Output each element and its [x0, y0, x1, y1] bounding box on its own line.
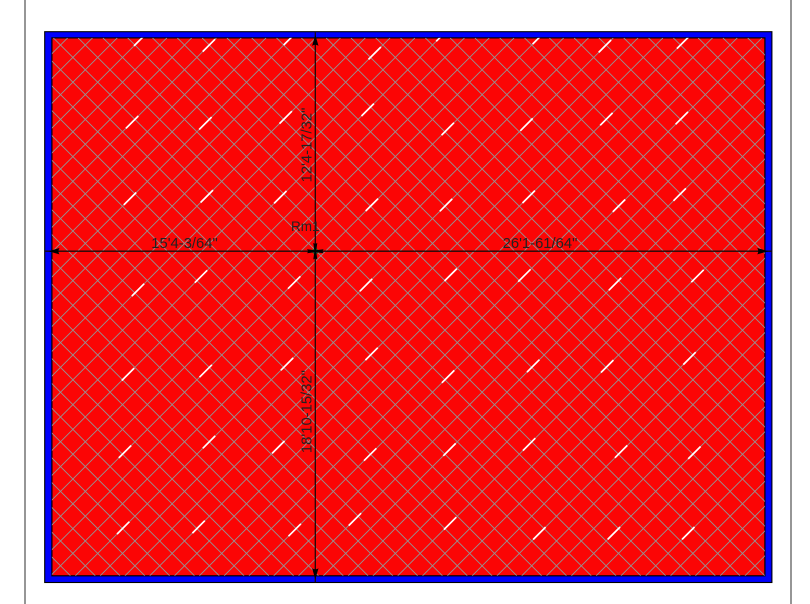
svg-text:12'4-17/32": 12'4-17/32" [300, 108, 316, 183]
svg-text:18'10-15/32": 18'10-15/32" [300, 370, 316, 453]
svg-text:15'4-3/64": 15'4-3/64" [151, 236, 218, 252]
svg-text:Rm1: Rm1 [291, 219, 320, 234]
svg-text:26'1-61/64": 26'1-61/64" [503, 236, 578, 252]
